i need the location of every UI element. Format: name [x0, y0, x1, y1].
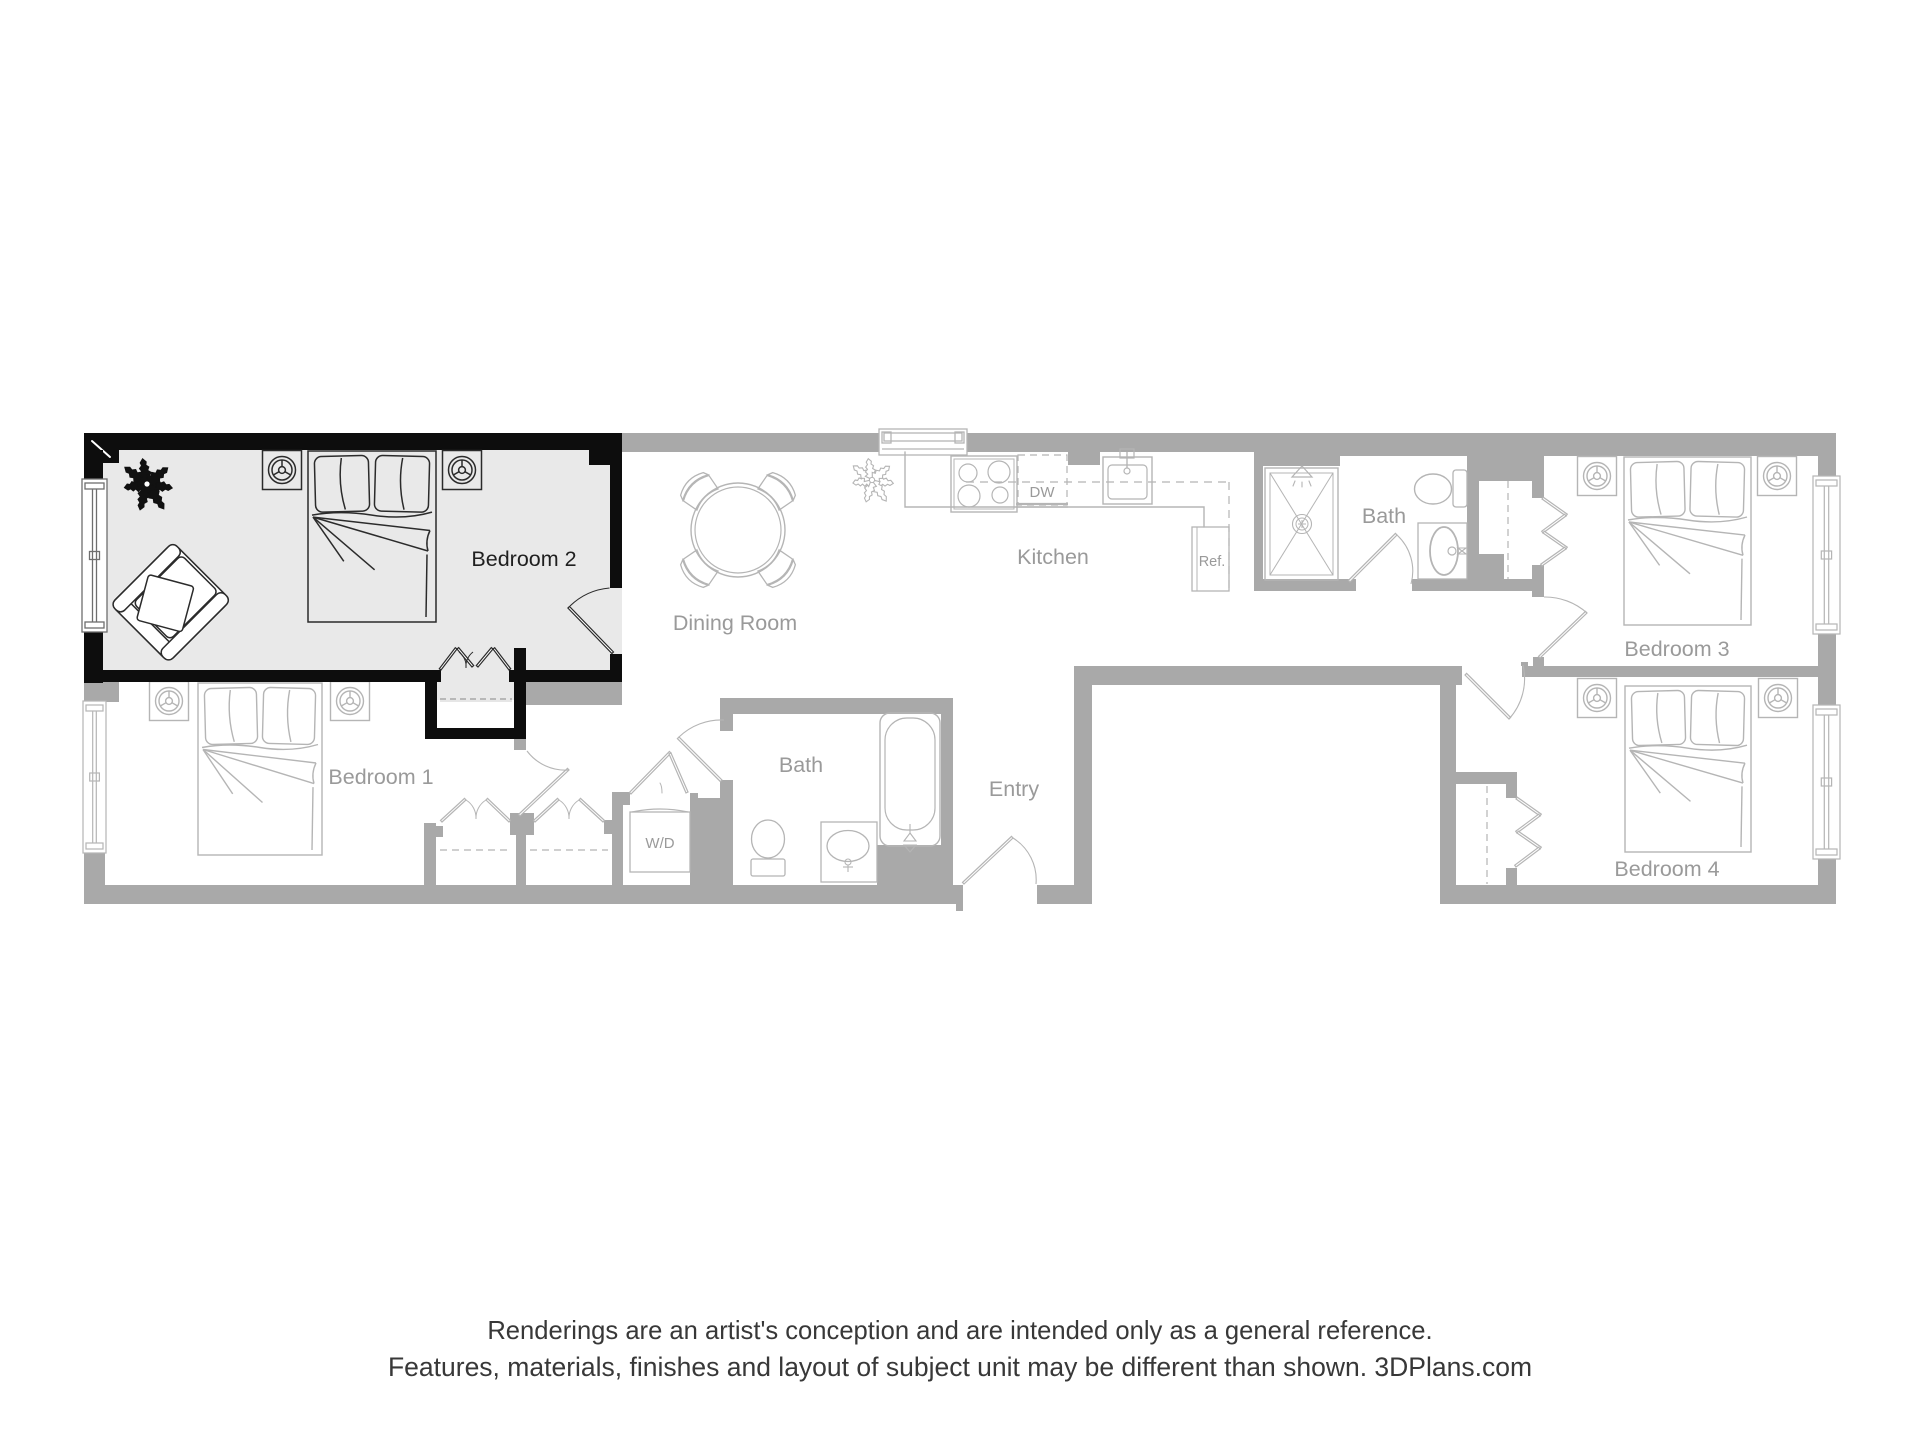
svg-text:Ref.: Ref. — [1199, 554, 1226, 570]
svg-text:Renderings are an artist's con: Renderings are an artist's conception an… — [487, 1317, 1432, 1345]
svg-text:DW: DW — [1030, 484, 1056, 501]
svg-text:Bedroom 1: Bedroom 1 — [328, 765, 433, 789]
svg-text:Kitchen: Kitchen — [1017, 545, 1089, 569]
svg-text:Bedroom 2: Bedroom 2 — [471, 547, 576, 571]
svg-text:W/D: W/D — [645, 835, 674, 852]
svg-text:Entry: Entry — [989, 777, 1039, 801]
svg-text:Bedroom 3: Bedroom 3 — [1624, 637, 1729, 661]
svg-text:Bedroom 4: Bedroom 4 — [1614, 857, 1719, 881]
svg-text:Bath: Bath — [1362, 504, 1406, 528]
svg-text:Features, materials, finishes: Features, materials, finishes and layout… — [388, 1352, 1532, 1382]
svg-text:Dining Room: Dining Room — [673, 611, 797, 635]
svg-text:Bath: Bath — [779, 753, 823, 777]
